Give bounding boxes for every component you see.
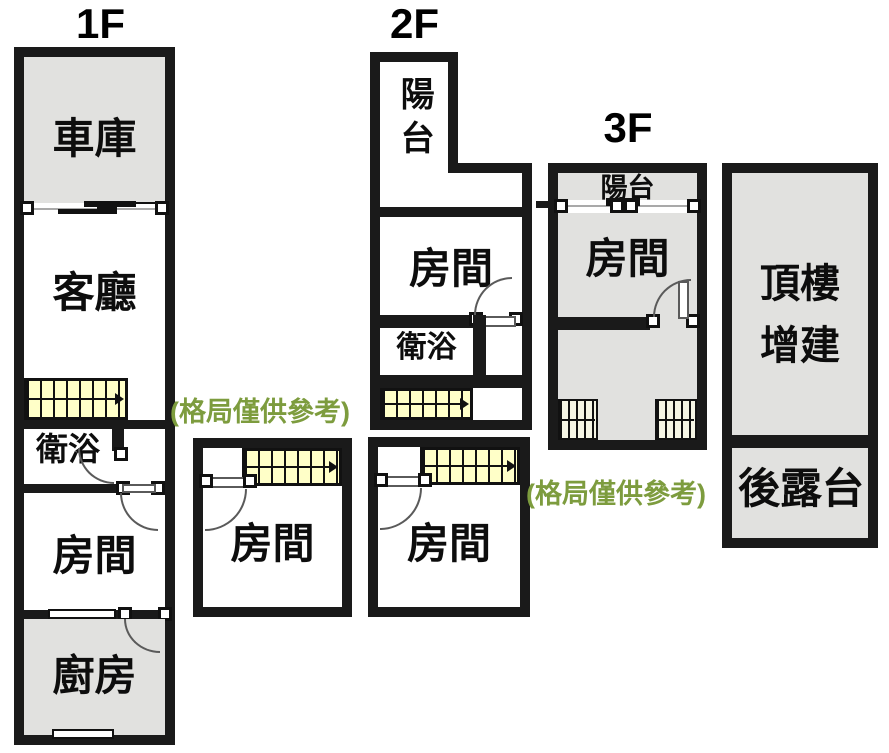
floor3-main-outline: 陽台 房間 bbox=[548, 163, 707, 450]
door-leaf bbox=[122, 484, 156, 493]
floor2-main-outline: 房間 衛浴 bbox=[370, 207, 532, 430]
bedroom-door-arc bbox=[120, 493, 158, 531]
interior-wall bbox=[732, 435, 868, 448]
staircase-symbol bbox=[242, 448, 342, 486]
floor-plan-canvas: 1F 車庫 客廳 衛浴 房間 bbox=[0, 0, 889, 753]
staircase-symbol bbox=[558, 399, 598, 440]
rooftop-addition-line2: 增建 bbox=[732, 315, 868, 377]
door-jamb bbox=[20, 201, 34, 215]
balcony-wall bbox=[370, 52, 458, 62]
door-jamb bbox=[418, 473, 432, 487]
rear-bedroom-label: 房間 bbox=[203, 520, 342, 568]
stair-direction-arrow bbox=[329, 461, 338, 473]
door-jamb bbox=[610, 199, 624, 213]
staircase-symbol bbox=[24, 378, 128, 420]
window-symbol bbox=[52, 729, 114, 739]
floor1-main-outline: 車庫 客廳 衛浴 房間 bbox=[14, 47, 175, 745]
layout-disclaimer-text: (格局僅供參考) bbox=[526, 472, 706, 511]
floor2-label: 2F bbox=[372, 0, 457, 48]
stair-direction-line bbox=[28, 398, 116, 400]
balcony-sliding-door bbox=[558, 200, 697, 213]
garage-sliding-door bbox=[24, 203, 165, 215]
bathroom-door-arc bbox=[78, 448, 114, 484]
door-jamb bbox=[199, 474, 213, 488]
stair-direction-line bbox=[424, 465, 508, 467]
balcony-wall bbox=[448, 163, 532, 173]
bathroom-label: 衛浴 bbox=[380, 331, 473, 366]
interior-wall bbox=[380, 375, 522, 388]
garage-label: 車庫 bbox=[24, 115, 165, 163]
bedroom-label: 房間 bbox=[24, 532, 165, 580]
staircase-symbol bbox=[380, 388, 473, 420]
rear-bedroom-label: 房間 bbox=[378, 520, 520, 568]
door-jamb bbox=[155, 201, 169, 215]
interior-wall bbox=[380, 315, 473, 328]
balcony-wall bbox=[370, 52, 380, 217]
interior-wall bbox=[24, 484, 122, 493]
stair-direction-line bbox=[246, 466, 330, 468]
door-leaf bbox=[678, 281, 689, 319]
stair-direction-line bbox=[658, 419, 694, 421]
staircase-symbol bbox=[655, 399, 697, 440]
floor2-rear-room-outline: 房間 bbox=[368, 437, 530, 617]
door-jamb bbox=[554, 199, 568, 213]
floor1-rear-room-outline: 房間 bbox=[193, 438, 352, 617]
rear-terrace-label: 後露台 bbox=[728, 465, 874, 513]
door-jamb bbox=[374, 473, 388, 487]
window-symbol bbox=[48, 609, 116, 619]
rooftop-addition-line1: 頂樓 bbox=[732, 253, 868, 315]
stair-direction-arrow bbox=[115, 393, 124, 405]
interior-wall bbox=[24, 420, 165, 429]
floor1-label: 1F bbox=[58, 0, 143, 48]
layout-disclaimer-text: (格局僅供參考) bbox=[170, 390, 350, 429]
floor3-label: 3F bbox=[583, 104, 673, 152]
balcony-label: 陽台 bbox=[394, 76, 433, 164]
staircase-symbol bbox=[420, 447, 520, 485]
door-jamb bbox=[114, 447, 128, 461]
rooftop-addition-label: 頂樓 增建 bbox=[732, 253, 868, 377]
door-jamb bbox=[243, 474, 257, 488]
stair-direction-arrow bbox=[507, 460, 516, 472]
door-jamb bbox=[624, 199, 638, 213]
living-room-label: 客廳 bbox=[24, 269, 165, 317]
sliding-panel-bar bbox=[58, 209, 108, 214]
stair-direction-arrow bbox=[460, 398, 469, 410]
rooftop-outline: 頂樓 增建 後露台 bbox=[722, 163, 878, 548]
interior-wall bbox=[558, 317, 650, 330]
balcony-wall bbox=[448, 52, 458, 173]
balcony-area bbox=[458, 173, 522, 207]
stair-direction-line bbox=[384, 403, 461, 405]
stair-direction-line bbox=[561, 419, 595, 421]
kitchen-label: 廚房 bbox=[24, 652, 165, 700]
door-jamb bbox=[687, 199, 701, 213]
bedroom-label: 房間 bbox=[558, 235, 697, 283]
